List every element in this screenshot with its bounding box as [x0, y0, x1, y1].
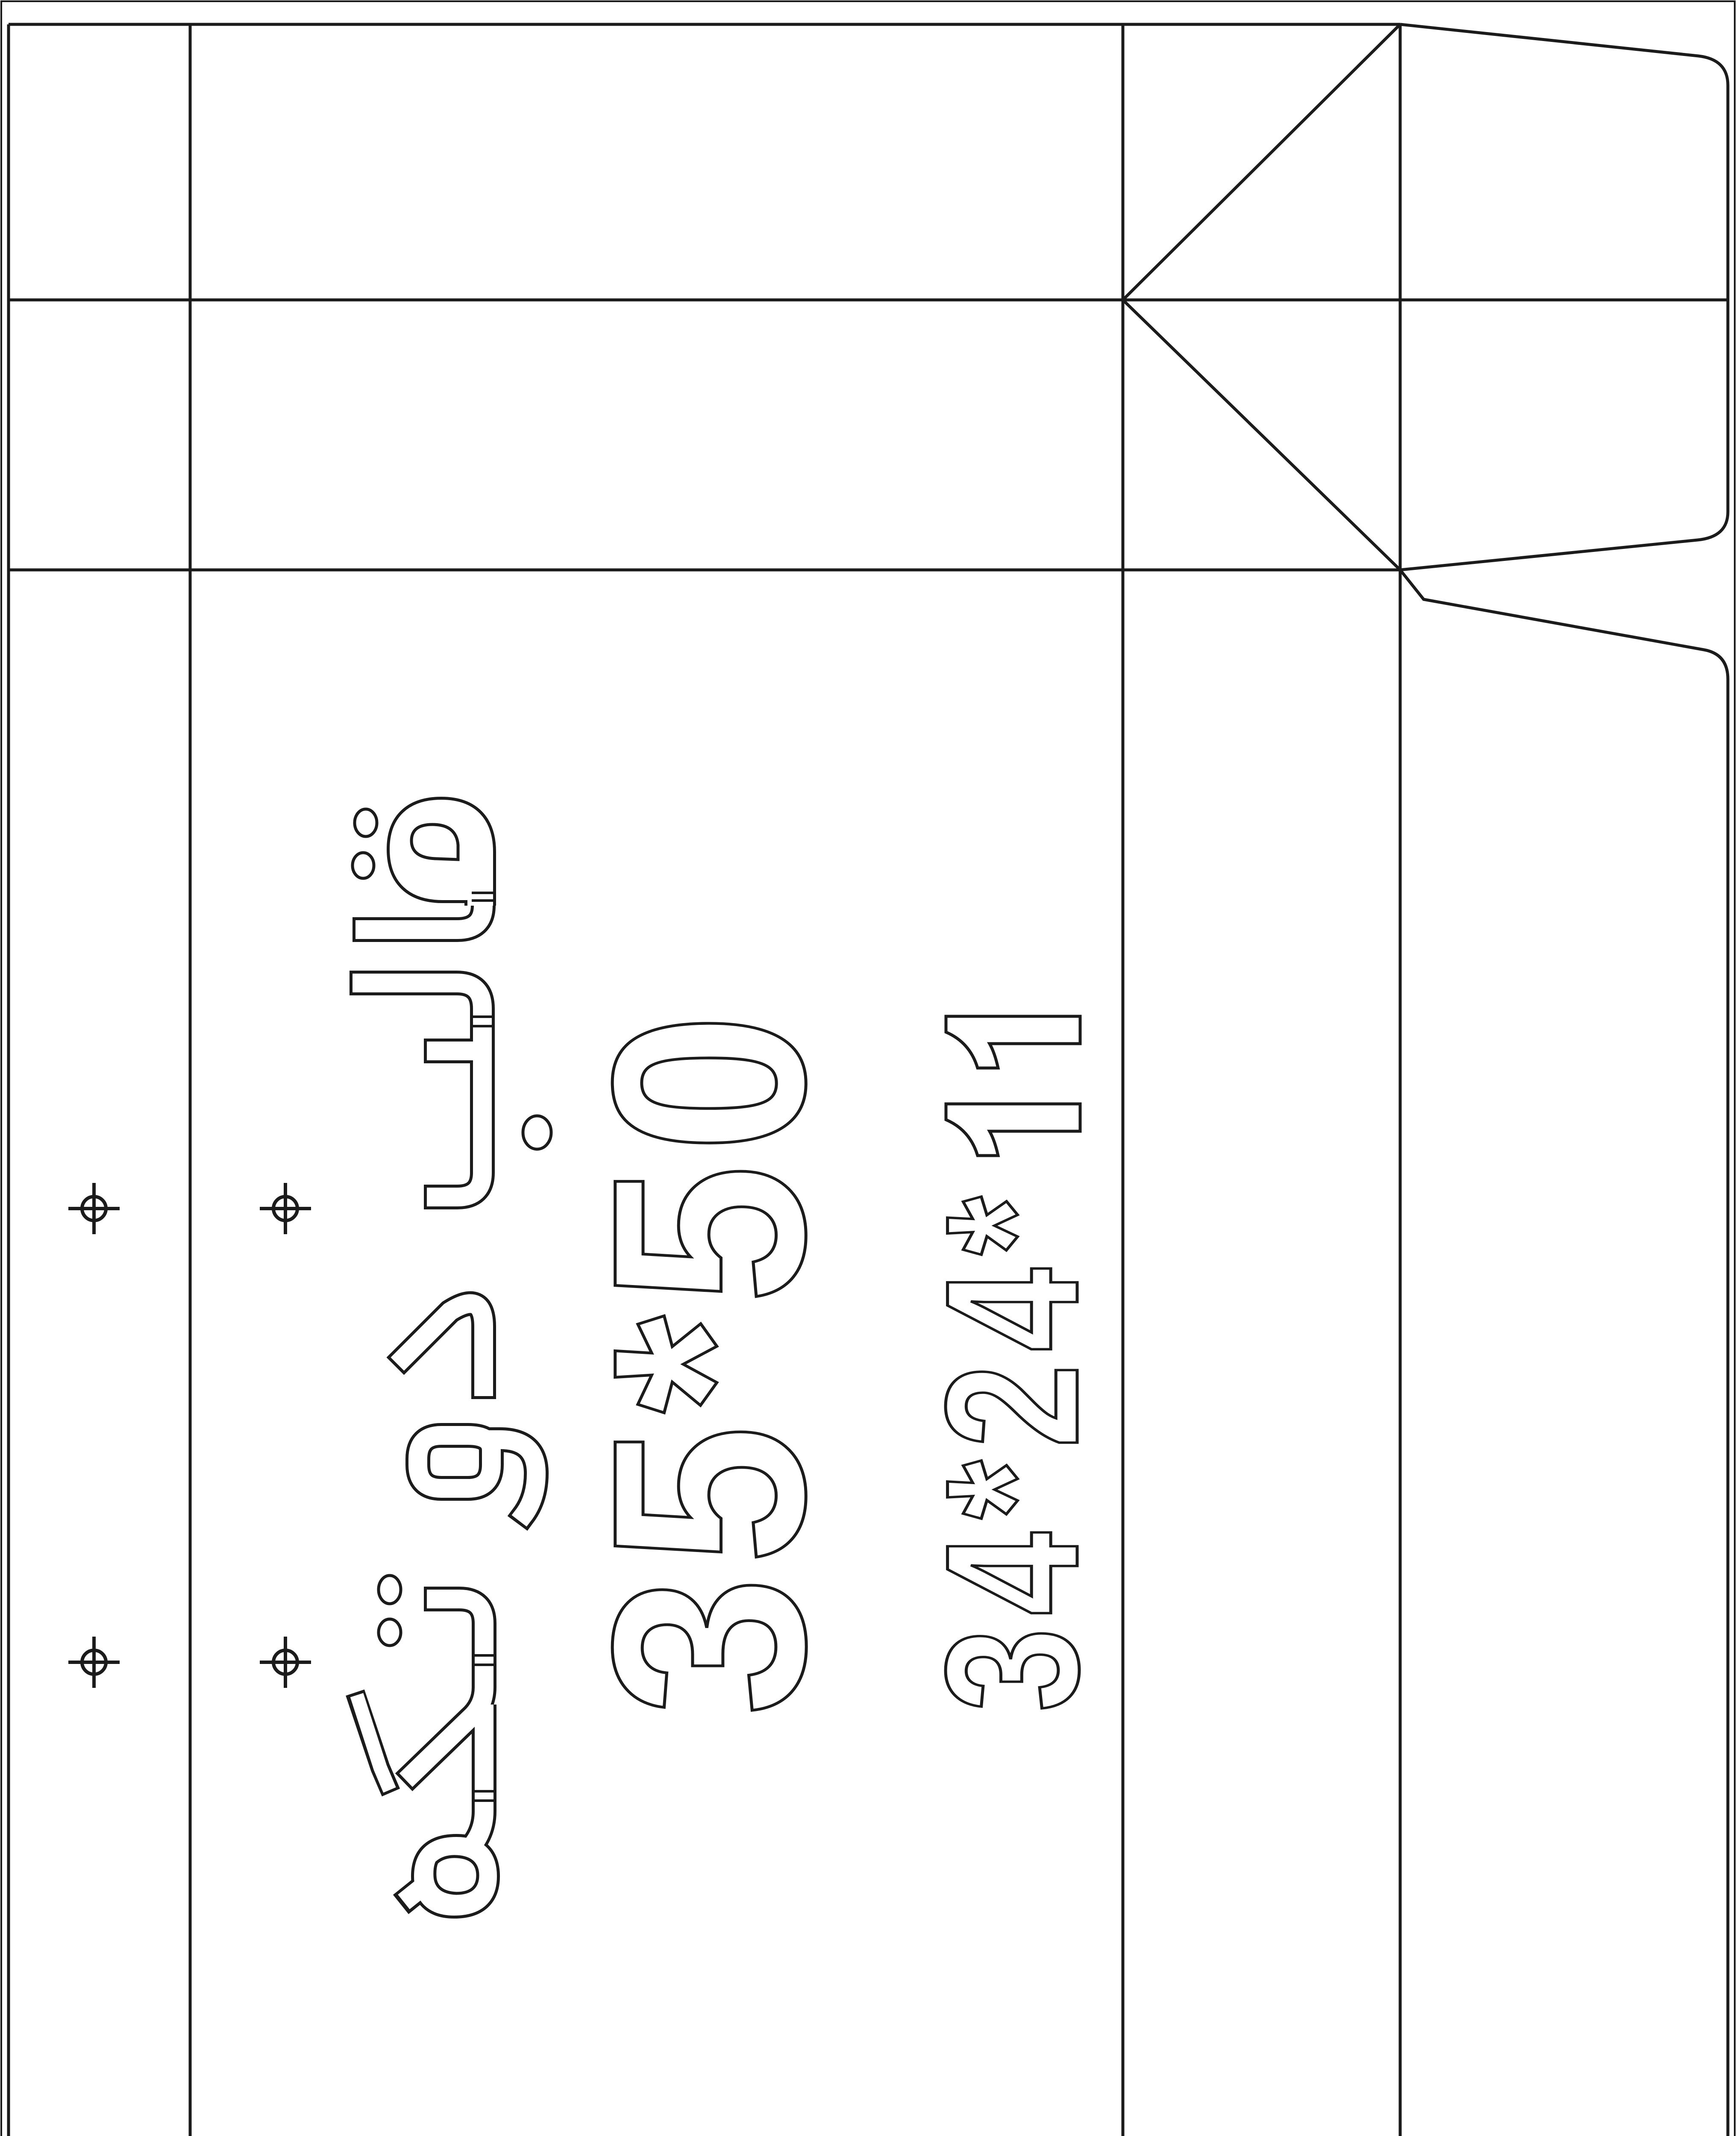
svg-text:35*50: 35*50: [556, 1002, 861, 1716]
svg-text:34*24*: 34*24*: [906, 1184, 1117, 1712]
